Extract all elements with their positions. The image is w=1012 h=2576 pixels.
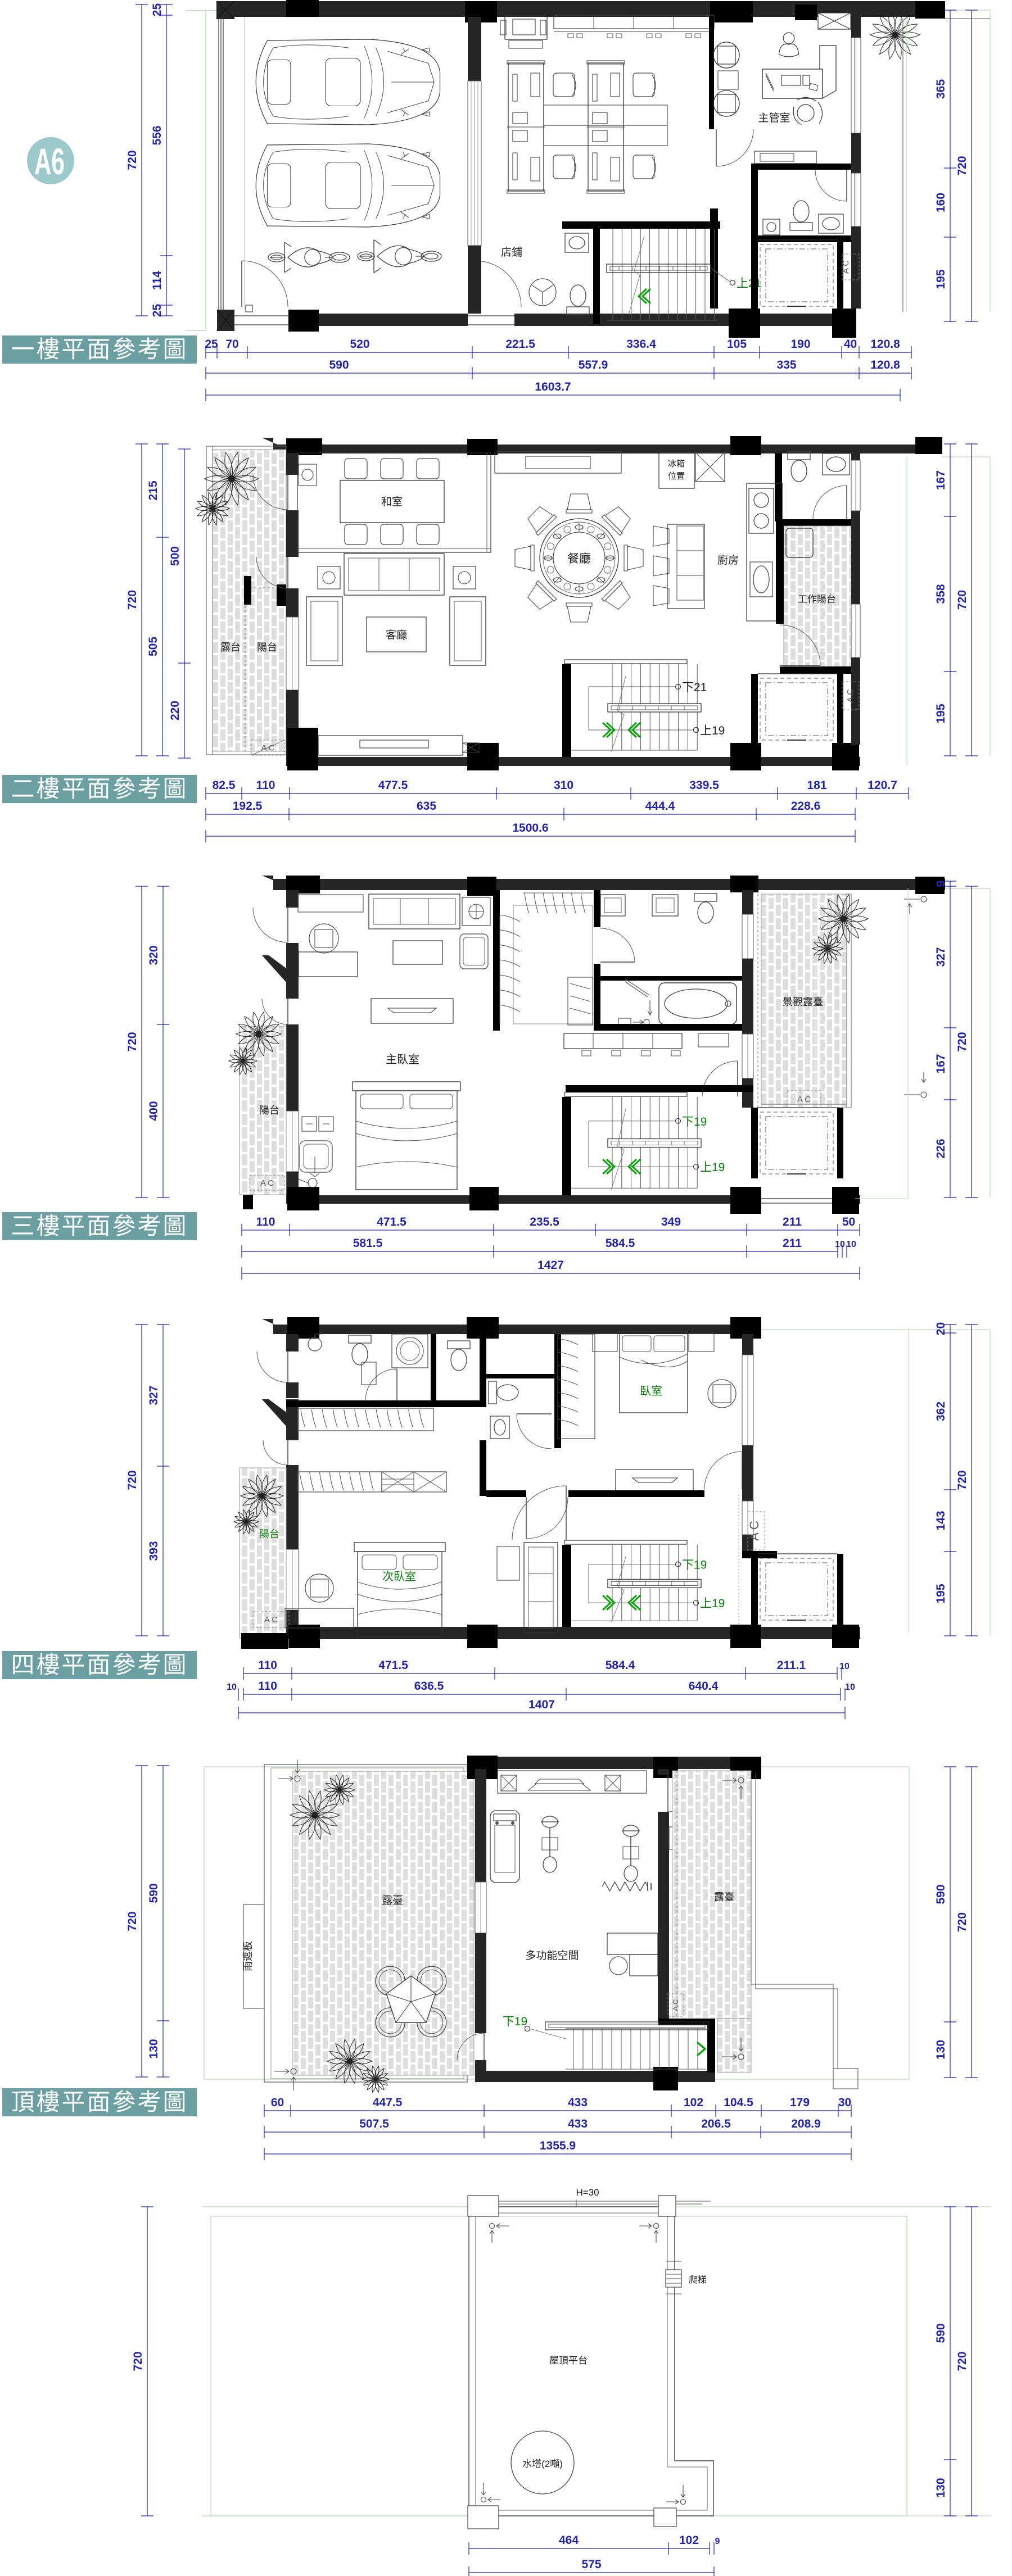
- svg-text:195: 195: [934, 269, 947, 289]
- svg-text:336.4: 336.4: [626, 338, 656, 351]
- svg-text:143: 143: [934, 1511, 947, 1530]
- svg-text:10: 10: [839, 1662, 850, 1671]
- svg-text:120.8: 120.8: [870, 338, 900, 351]
- svg-text:陽台: 陽台: [259, 1529, 279, 1540]
- svg-text:433: 433: [568, 2117, 588, 2130]
- svg-text:下21: 下21: [682, 681, 707, 694]
- svg-text:720: 720: [956, 2351, 969, 2371]
- svg-text:位置: 位置: [668, 471, 685, 481]
- svg-text:1603.7: 1603.7: [535, 380, 571, 393]
- svg-text:A C: A C: [671, 1999, 680, 2011]
- svg-text:195: 195: [934, 1584, 947, 1603]
- svg-text:167: 167: [934, 1054, 947, 1073]
- svg-text:720: 720: [126, 1911, 139, 1931]
- svg-text:9: 9: [715, 2537, 720, 2546]
- svg-text:192.5: 192.5: [233, 800, 263, 813]
- svg-text:720: 720: [126, 150, 139, 170]
- svg-text:A6: A6: [34, 140, 65, 182]
- svg-text:客廳: 客廳: [386, 629, 407, 641]
- svg-text:211: 211: [783, 1216, 802, 1228]
- svg-text:195: 195: [934, 704, 947, 723]
- svg-text:226: 226: [934, 1139, 947, 1158]
- svg-text:多功能空間: 多功能空間: [525, 1949, 579, 1962]
- svg-text:358: 358: [934, 584, 947, 604]
- svg-text:110: 110: [258, 1659, 277, 1672]
- svg-text:餐廳: 餐廳: [567, 552, 591, 565]
- svg-text:25: 25: [205, 338, 218, 351]
- svg-text:9: 9: [934, 881, 947, 887]
- svg-text:636.5: 636.5: [414, 1680, 444, 1693]
- svg-text:次臥室: 次臥室: [382, 1570, 416, 1583]
- svg-text:444.4: 444.4: [645, 800, 675, 813]
- svg-text:臥室: 臥室: [640, 1385, 662, 1398]
- svg-text:110: 110: [256, 1216, 275, 1228]
- svg-text:25: 25: [151, 3, 164, 17]
- svg-text:四樓平面參考圖: 四樓平面參考圖: [11, 1652, 188, 1678]
- svg-text:60: 60: [271, 2096, 284, 2109]
- svg-text:主管室: 主管室: [758, 112, 790, 124]
- svg-text:590: 590: [329, 359, 349, 371]
- svg-text:陽台: 陽台: [259, 1105, 279, 1116]
- svg-text:景觀露臺: 景觀露臺: [783, 996, 823, 1008]
- svg-text:335: 335: [776, 359, 796, 371]
- svg-text:10: 10: [227, 1682, 237, 1692]
- svg-text:400: 400: [147, 1101, 160, 1121]
- svg-text:393: 393: [147, 1541, 160, 1561]
- svg-text:720: 720: [126, 590, 139, 610]
- svg-text:20: 20: [934, 1322, 947, 1335]
- svg-text:584.5: 584.5: [606, 1237, 635, 1250]
- svg-text:447.5: 447.5: [373, 2096, 403, 2109]
- svg-text:40: 40: [844, 338, 857, 351]
- svg-text:冰箱: 冰箱: [668, 459, 685, 469]
- svg-text:635: 635: [417, 800, 436, 813]
- svg-text:70: 70: [225, 338, 238, 351]
- svg-text:310: 310: [554, 779, 573, 792]
- svg-text:556: 556: [151, 125, 164, 145]
- svg-text:190: 190: [790, 338, 810, 351]
- svg-text:露臺: 露臺: [382, 1894, 403, 1907]
- svg-text:130: 130: [147, 2039, 160, 2058]
- svg-text:433: 433: [568, 2096, 588, 2109]
- svg-text:720: 720: [956, 156, 969, 175]
- svg-text:上19: 上19: [700, 1597, 725, 1610]
- svg-text:590: 590: [934, 1884, 947, 1904]
- svg-text:105: 105: [727, 338, 747, 351]
- svg-text:211: 211: [783, 1237, 802, 1250]
- svg-text:下19: 下19: [682, 1559, 707, 1572]
- svg-text:上19: 上19: [700, 1161, 725, 1174]
- svg-text:1500.6: 1500.6: [512, 822, 548, 835]
- svg-text:206.5: 206.5: [701, 2117, 731, 2130]
- svg-text:167: 167: [934, 470, 947, 490]
- svg-text:590: 590: [147, 1883, 160, 1903]
- svg-text:211.1: 211.1: [777, 1659, 806, 1672]
- svg-text:120.7: 120.7: [868, 779, 897, 792]
- svg-text:130: 130: [934, 2478, 947, 2497]
- svg-text:720: 720: [126, 1470, 139, 1490]
- svg-text:1355.9: 1355.9: [540, 2139, 576, 2152]
- svg-text:露臺: 露臺: [714, 1892, 734, 1903]
- svg-text:A C: A C: [846, 689, 855, 702]
- svg-text:和室: 和室: [381, 496, 403, 508]
- svg-text:320: 320: [147, 945, 160, 965]
- svg-text:H=30: H=30: [576, 2187, 599, 2198]
- svg-text:1427: 1427: [537, 1259, 564, 1272]
- svg-text:720: 720: [956, 1032, 969, 1051]
- svg-text:339.5: 339.5: [689, 779, 719, 792]
- svg-text:雨遮板: 雨遮板: [242, 1941, 254, 1971]
- svg-text:160: 160: [934, 193, 947, 212]
- svg-text:110: 110: [258, 1680, 277, 1693]
- svg-text:110: 110: [256, 779, 275, 792]
- svg-text:584.4: 584.4: [606, 1659, 635, 1672]
- svg-text:179: 179: [790, 2096, 810, 2109]
- svg-text:A C: A C: [264, 1615, 278, 1625]
- svg-text:471.5: 471.5: [377, 1216, 406, 1228]
- svg-text:235.5: 235.5: [530, 1216, 559, 1228]
- svg-text:上19: 上19: [700, 724, 725, 737]
- svg-text:10: 10: [835, 1240, 845, 1249]
- svg-text:362: 362: [934, 1402, 947, 1421]
- svg-text:181: 181: [807, 779, 826, 792]
- svg-text:720: 720: [956, 1912, 969, 1932]
- svg-text:590: 590: [934, 2323, 947, 2343]
- svg-text:下19: 下19: [503, 2015, 527, 2028]
- svg-text:557.9: 557.9: [579, 359, 608, 371]
- svg-text:主臥室: 主臥室: [386, 1053, 419, 1066]
- svg-text:130: 130: [934, 2040, 947, 2060]
- svg-text:104.5: 104.5: [724, 2096, 753, 2109]
- svg-text:A C: A C: [841, 260, 851, 274]
- svg-text:720: 720: [126, 1032, 139, 1051]
- svg-text:工作陽台: 工作陽台: [798, 594, 836, 605]
- svg-text:25: 25: [151, 304, 164, 318]
- svg-text:一樓平面參考圖: 一樓平面參考圖: [11, 336, 188, 362]
- svg-text:1407: 1407: [528, 1698, 555, 1711]
- svg-text:208.9: 208.9: [791, 2117, 821, 2130]
- svg-text:10: 10: [845, 1682, 855, 1692]
- svg-text:露台: 露台: [220, 642, 241, 653]
- svg-text:471.5: 471.5: [378, 1659, 408, 1672]
- svg-text:507.5: 507.5: [359, 2117, 389, 2130]
- svg-text:10: 10: [846, 1240, 856, 1249]
- svg-text:爬梯: 爬梯: [689, 2275, 707, 2285]
- svg-text:店鋪: 店鋪: [501, 246, 522, 258]
- svg-text:A C: A C: [260, 1178, 274, 1188]
- svg-text:頂樓平面參考圖: 頂樓平面參考圖: [11, 2089, 188, 2115]
- svg-text:505: 505: [147, 637, 160, 656]
- svg-text:下19: 下19: [682, 1115, 707, 1128]
- svg-text:327: 327: [934, 947, 947, 967]
- svg-text:520: 520: [350, 338, 369, 351]
- svg-text:三樓平面參考圖: 三樓平面參考圖: [11, 1213, 188, 1239]
- svg-text:二樓平面參考圖: 二樓平面參考圖: [11, 775, 188, 802]
- svg-text:102: 102: [679, 2534, 699, 2547]
- svg-text:581.5: 581.5: [353, 1237, 383, 1250]
- svg-text:220: 220: [169, 701, 182, 720]
- svg-text:陽台: 陽台: [257, 642, 277, 653]
- svg-text:349: 349: [661, 1216, 681, 1228]
- svg-text:575: 575: [581, 2558, 601, 2571]
- svg-text:477.5: 477.5: [378, 779, 408, 792]
- svg-text:720: 720: [956, 1470, 969, 1490]
- svg-text:A C: A C: [797, 1095, 811, 1104]
- svg-text:228.6: 228.6: [791, 800, 821, 813]
- svg-text:365: 365: [934, 79, 947, 99]
- svg-text:水塔(2噸): 水塔(2噸): [522, 2459, 563, 2469]
- svg-text:114: 114: [151, 271, 164, 290]
- svg-text:120.8: 120.8: [870, 359, 900, 371]
- svg-text:500: 500: [169, 546, 182, 566]
- svg-text:A C: A C: [747, 1521, 761, 1541]
- svg-text:30: 30: [838, 2096, 851, 2109]
- svg-text:327: 327: [147, 1385, 160, 1405]
- svg-text:82.5: 82.5: [213, 779, 236, 792]
- svg-text:215: 215: [147, 480, 160, 500]
- svg-text:屋頂平台: 屋頂平台: [549, 2355, 588, 2366]
- svg-text:720: 720: [956, 590, 969, 610]
- svg-text:221.5: 221.5: [505, 338, 535, 351]
- svg-text:102: 102: [684, 2096, 703, 2109]
- svg-text:640.4: 640.4: [689, 1680, 719, 1693]
- svg-text:464: 464: [559, 2534, 579, 2547]
- svg-text:廚房: 廚房: [717, 554, 739, 566]
- svg-text:50: 50: [842, 1216, 855, 1228]
- svg-text:720: 720: [132, 2351, 144, 2371]
